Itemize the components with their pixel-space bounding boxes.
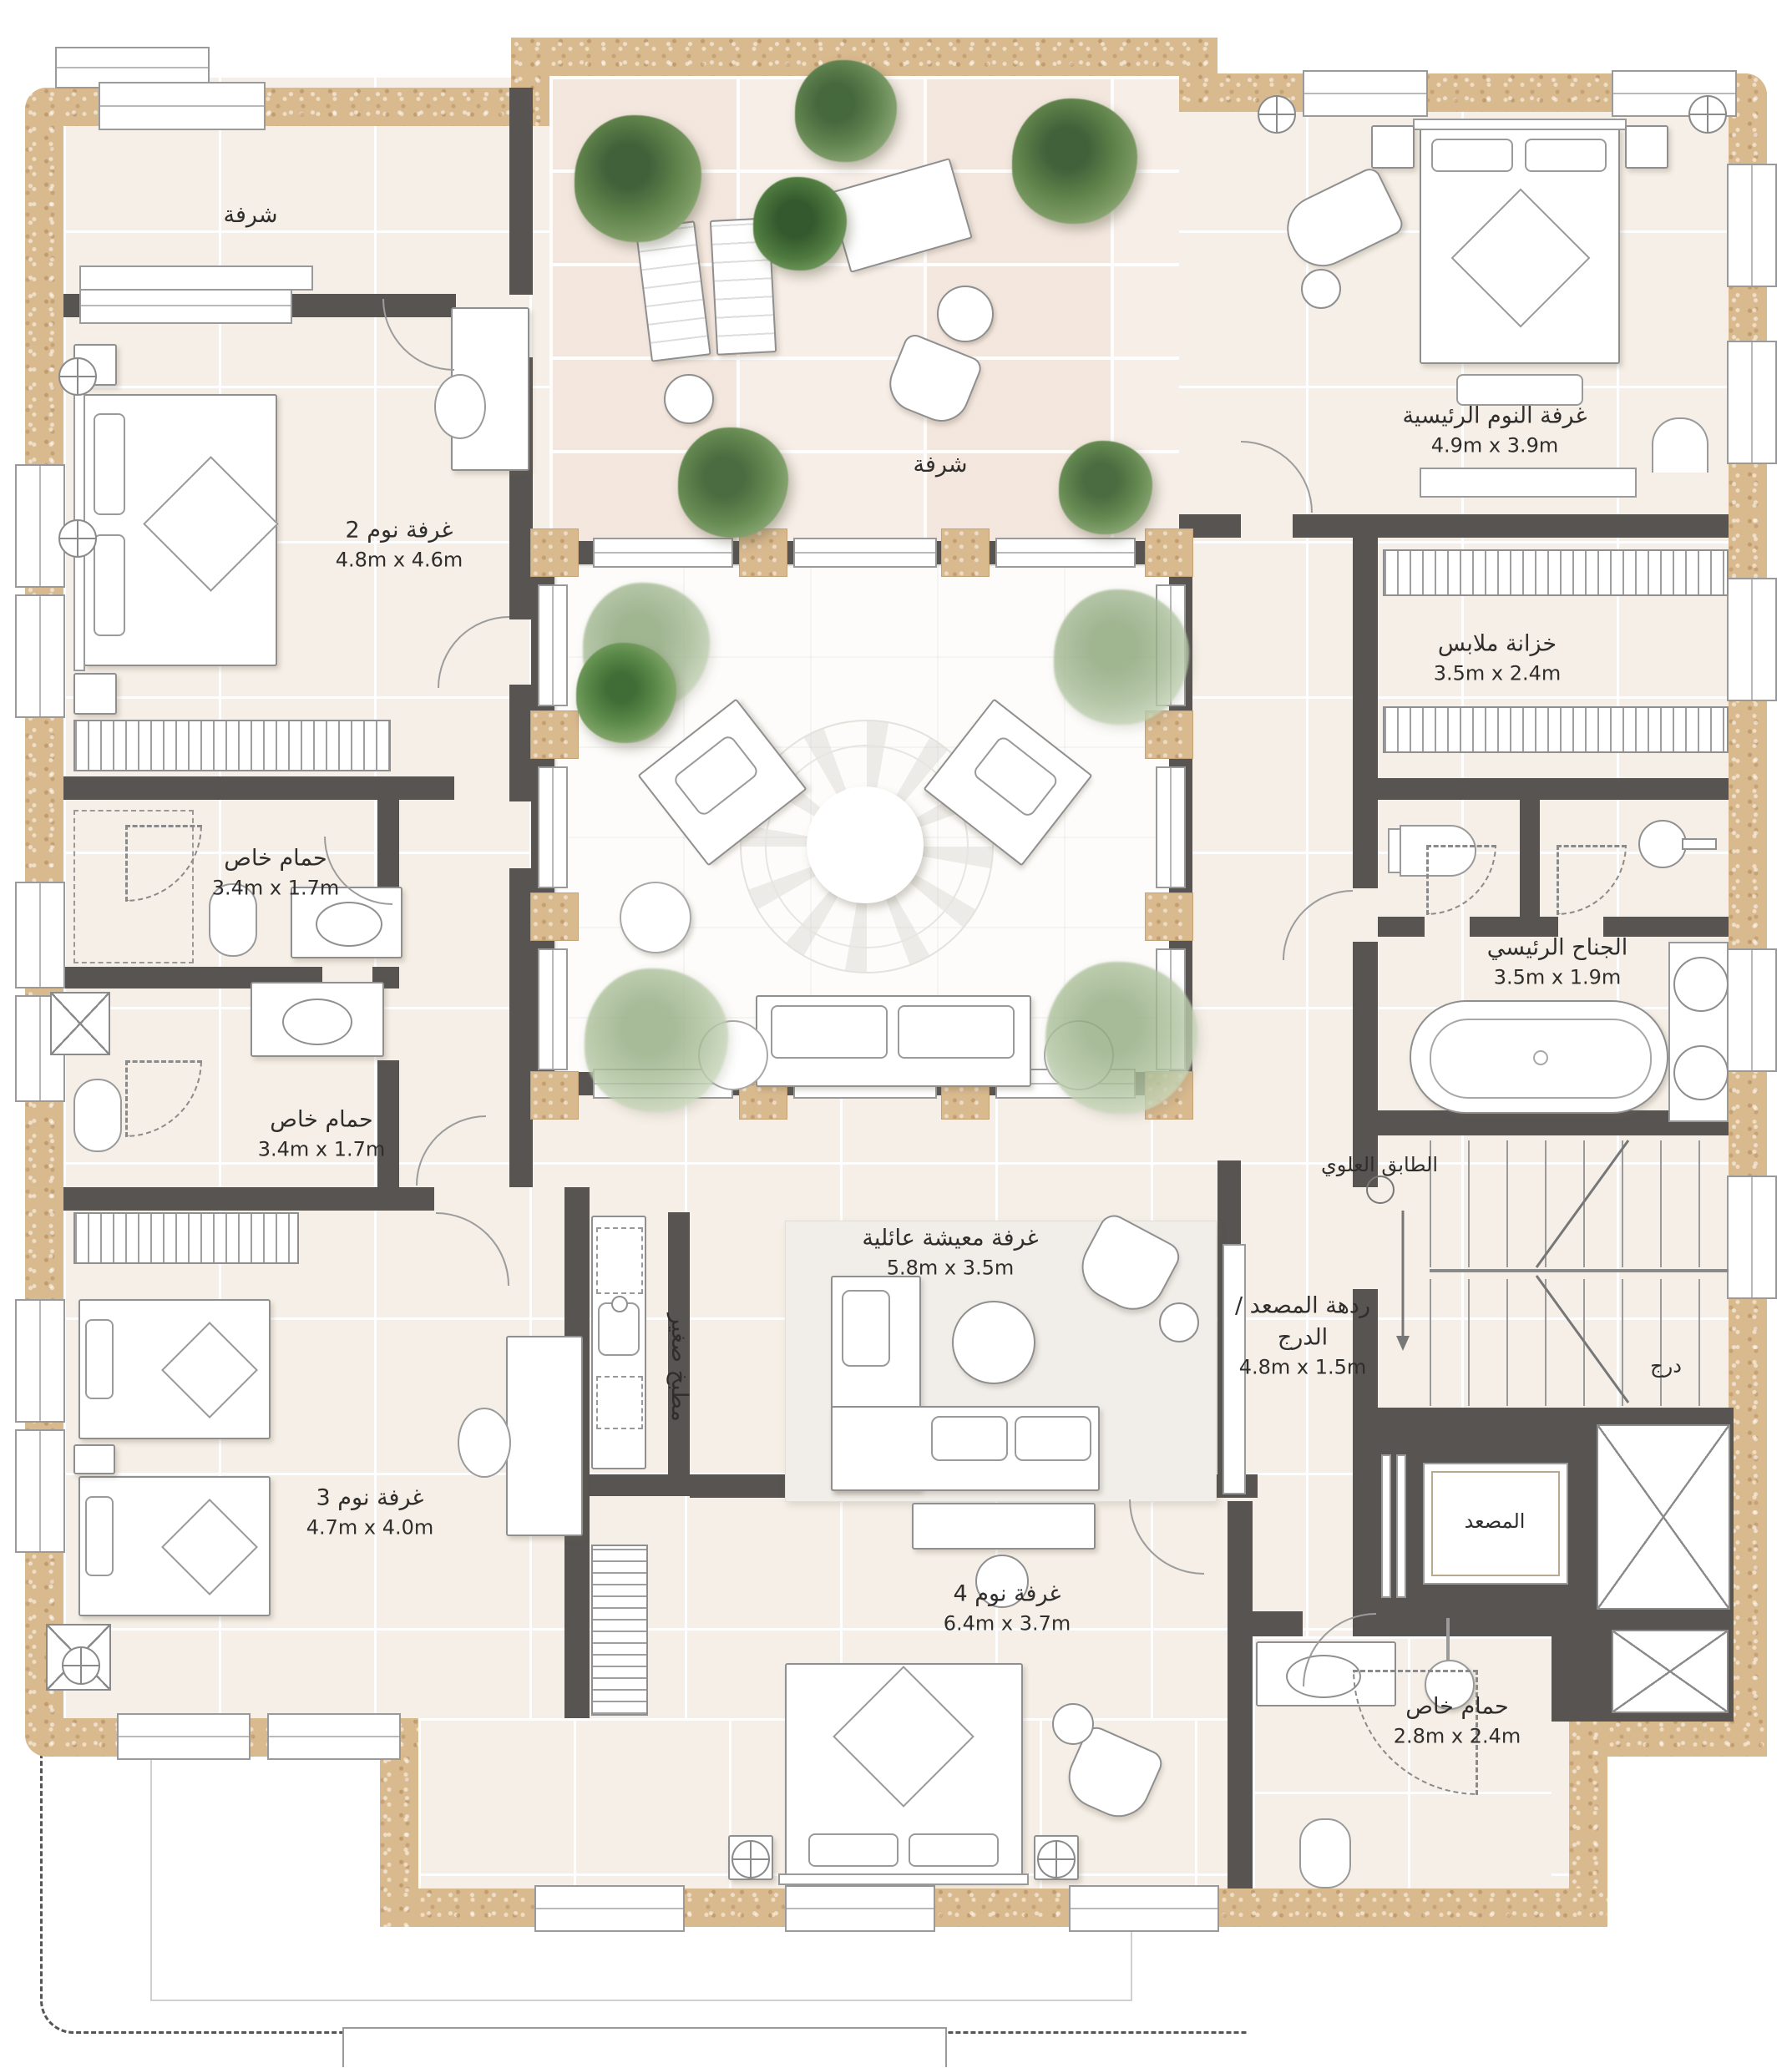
room-dims: 4.8m x 1.5m bbox=[1207, 1353, 1399, 1382]
room-name: حمام خاص bbox=[1394, 1691, 1521, 1722]
toilet bbox=[73, 1079, 122, 1152]
courtyard-table bbox=[807, 786, 924, 903]
room-name: حمام خاص bbox=[212, 842, 340, 874]
ceiling-lamp-icon bbox=[58, 519, 97, 558]
side-table bbox=[1301, 269, 1341, 309]
window bbox=[1303, 70, 1428, 117]
window bbox=[538, 584, 568, 706]
room-name: الجناح الرئيسي bbox=[1487, 932, 1627, 963]
plant bbox=[753, 177, 847, 271]
courtyard-sofa bbox=[756, 995, 1031, 1087]
elevator-shaft bbox=[1597, 1424, 1730, 1610]
shaft-box bbox=[50, 992, 110, 1055]
window bbox=[538, 948, 568, 1070]
room-dims: 4.8m x 4.6m bbox=[336, 546, 463, 574]
floor-tag-label: الطابق العلوي bbox=[1321, 1151, 1438, 1180]
pillar bbox=[1146, 711, 1192, 758]
window bbox=[1156, 766, 1186, 888]
kitchen-appliance-outline bbox=[596, 1227, 643, 1294]
desk bbox=[912, 1503, 1096, 1550]
round-table bbox=[937, 286, 994, 342]
pillar bbox=[942, 529, 989, 576]
wall bbox=[509, 88, 533, 295]
balcony-bench bbox=[79, 265, 313, 291]
wall bbox=[63, 1187, 434, 1211]
pillow bbox=[85, 1496, 114, 1576]
wall bbox=[1353, 942, 1378, 1135]
room-dims: 3.4m x 1.7m bbox=[212, 874, 340, 903]
room-name: غرفة نوم 2 bbox=[336, 514, 463, 546]
wall bbox=[564, 1474, 690, 1496]
wash-basin bbox=[1638, 820, 1687, 868]
cushion bbox=[771, 1005, 888, 1059]
window bbox=[15, 1299, 65, 1423]
chair bbox=[434, 374, 486, 439]
plant bbox=[575, 115, 701, 242]
wall bbox=[1378, 778, 1729, 800]
elevator-door-rail bbox=[1396, 1454, 1406, 1598]
kitchen-appliance-outline bbox=[596, 1376, 643, 1429]
sofa-cushion bbox=[842, 1290, 890, 1367]
wall bbox=[1293, 514, 1729, 538]
room-label-balcony: شرفة bbox=[224, 200, 278, 231]
sink bbox=[282, 999, 352, 1045]
room-dims: 5.8m x 3.5m bbox=[862, 1254, 1038, 1282]
window bbox=[117, 1713, 251, 1760]
wall bbox=[1520, 800, 1540, 918]
wall bbox=[63, 776, 454, 800]
arch-niche bbox=[1652, 417, 1708, 473]
nightstand bbox=[73, 1444, 115, 1474]
side-table bbox=[1159, 1302, 1199, 1342]
side-table bbox=[1052, 1703, 1094, 1745]
dresser bbox=[1420, 468, 1637, 498]
sink bbox=[1673, 957, 1729, 1012]
ceiling-lamp-icon bbox=[58, 357, 97, 396]
window bbox=[99, 82, 266, 130]
bathtub-drain bbox=[1533, 1050, 1548, 1065]
room-name: ردهة المصعد / الدرج bbox=[1207, 1290, 1399, 1353]
pendant-stem bbox=[1446, 1618, 1450, 1661]
pillow bbox=[1525, 139, 1607, 172]
elevator-door-rail bbox=[1381, 1454, 1391, 1598]
wall bbox=[1353, 538, 1378, 888]
room-name: شرفة bbox=[914, 449, 968, 481]
ceiling-lamp-icon bbox=[1037, 1840, 1076, 1878]
plant bbox=[1012, 99, 1137, 224]
stairs-label: درج bbox=[1650, 1353, 1682, 1381]
plant bbox=[1054, 589, 1189, 725]
plant bbox=[795, 60, 897, 162]
room-name: حمام خاص bbox=[258, 1104, 386, 1135]
nightstand bbox=[1625, 125, 1668, 169]
sink bbox=[1673, 1045, 1729, 1100]
pillar bbox=[1146, 893, 1192, 940]
toilet-tank bbox=[1388, 828, 1401, 873]
pillar bbox=[531, 893, 578, 940]
room-label-kitchenette: مطبخ صغير bbox=[663, 1313, 695, 1422]
ceiling-lamp-icon bbox=[1688, 95, 1727, 134]
nightstand bbox=[1371, 125, 1415, 169]
room-name: غرفة نوم 3 bbox=[306, 1482, 434, 1514]
room-name: غرفة نوم 4 bbox=[944, 1578, 1071, 1610]
room-label-family-living: غرفة معيشة عائلية 5.8m x 3.5m bbox=[862, 1222, 1038, 1282]
wall bbox=[1228, 1501, 1253, 1889]
room-name: شرفة bbox=[224, 200, 278, 231]
window bbox=[1727, 164, 1777, 287]
pillow bbox=[808, 1833, 899, 1867]
pillow bbox=[1431, 139, 1513, 172]
wall bbox=[1253, 1611, 1303, 1636]
cushion bbox=[671, 733, 760, 817]
toilet bbox=[1299, 1818, 1351, 1889]
floor-plan: شرفة شرفة غرفة نوم 2 4.8m x 4.6m غرفة ال… bbox=[0, 0, 1792, 2068]
plant bbox=[1059, 441, 1152, 534]
cushion bbox=[898, 1005, 1015, 1059]
room-name: درج bbox=[1650, 1353, 1682, 1381]
room-dims: 6.4m x 3.7m bbox=[944, 1610, 1071, 1638]
room-dims: 3.5m x 1.9m bbox=[1487, 963, 1627, 992]
side-table bbox=[664, 374, 714, 424]
window bbox=[15, 882, 65, 988]
window bbox=[15, 594, 65, 718]
pillow bbox=[85, 1319, 114, 1399]
pillar bbox=[531, 711, 578, 758]
pillow bbox=[909, 1833, 999, 1867]
window bbox=[534, 1885, 685, 1932]
room-label-bath1: حمام خاص 3.4m x 1.7m bbox=[212, 842, 340, 902]
level-marker-icon bbox=[1366, 1176, 1395, 1204]
window bbox=[267, 1713, 401, 1760]
bed-headboard bbox=[778, 1873, 1029, 1885]
window bbox=[1727, 1176, 1777, 1299]
window bbox=[995, 538, 1136, 568]
ceiling-lamp-icon bbox=[731, 1840, 770, 1878]
wardrobe bbox=[1383, 549, 1729, 596]
room-label-bath3: حمام خاص 2.8m x 2.4m bbox=[1394, 1691, 1521, 1750]
wall bbox=[1378, 917, 1425, 937]
room-label-terrace: شرفة bbox=[914, 449, 968, 481]
fern-plant bbox=[576, 643, 676, 743]
room-label-bath2: حمام خاص 3.4m x 1.7m bbox=[258, 1104, 386, 1163]
room-label-bedroom3: غرفة نوم 3 4.7m x 4.0m bbox=[306, 1482, 434, 1541]
laundry-cabinet bbox=[591, 1545, 648, 1716]
room-dims: 2.8m x 2.4m bbox=[1394, 1722, 1521, 1751]
wall bbox=[509, 685, 533, 801]
pillow bbox=[94, 534, 125, 636]
room-dims: 4.9m x 3.9m bbox=[1402, 432, 1587, 460]
room-dims: 4.7m x 4.0m bbox=[306, 1514, 434, 1542]
room-label-lobby: ردهة المصعد / الدرج 4.8m x 1.5m bbox=[1207, 1290, 1399, 1381]
coffee-table bbox=[952, 1301, 1035, 1384]
wardrobe bbox=[73, 1212, 299, 1264]
window bbox=[1727, 341, 1777, 464]
pillow bbox=[94, 413, 125, 515]
window bbox=[15, 464, 65, 588]
room-name: غرفة معيشة عائلية bbox=[862, 1222, 1038, 1254]
window bbox=[1069, 1885, 1219, 1932]
room-name: غرفة النوم الرئيسية bbox=[1402, 400, 1587, 432]
room-name: خزانة ملابس bbox=[1434, 628, 1562, 660]
room-name: مطبخ صغير bbox=[663, 1313, 695, 1422]
shaft-box bbox=[1612, 1630, 1729, 1713]
pillar bbox=[531, 529, 578, 576]
elevator-label: المصعد bbox=[1465, 1508, 1526, 1536]
window bbox=[1727, 948, 1777, 1072]
plant bbox=[678, 427, 788, 538]
lower-entry-slab bbox=[342, 2027, 947, 2067]
plant bbox=[1045, 962, 1197, 1114]
side-table bbox=[620, 882, 691, 953]
pillar bbox=[531, 1072, 578, 1119]
room-label-bedroom4: غرفة نوم 4 6.4m x 3.7m bbox=[944, 1578, 1071, 1637]
nightstand bbox=[73, 673, 117, 715]
wall bbox=[1378, 1611, 1552, 1636]
pillar bbox=[1146, 529, 1192, 576]
bed-headboard bbox=[1413, 119, 1627, 130]
room-label-bedroom2: غرفة نوم 2 4.8m x 4.6m bbox=[336, 514, 463, 574]
window bbox=[793, 538, 937, 568]
sofa-cushion bbox=[1015, 1416, 1091, 1461]
sofa-cushion bbox=[931, 1416, 1008, 1461]
window bbox=[79, 287, 292, 324]
room-dims: 3.5m x 2.4m bbox=[1434, 660, 1562, 688]
chair bbox=[458, 1408, 511, 1478]
room-label-closet: خزانة ملابس 3.5m x 2.4m bbox=[1434, 628, 1562, 687]
desk bbox=[506, 1336, 583, 1536]
wardrobe bbox=[73, 720, 391, 771]
room-name: المصعد bbox=[1465, 1508, 1526, 1536]
pillar bbox=[740, 529, 787, 576]
window bbox=[593, 538, 733, 568]
cushion bbox=[971, 734, 1060, 818]
wall bbox=[509, 868, 533, 1187]
ceiling-lamp-icon bbox=[1258, 95, 1296, 134]
basin-spout bbox=[1682, 838, 1717, 850]
room-label-master-suite: الجناح الرئيسي 3.5m x 1.9m bbox=[1487, 932, 1627, 991]
sink bbox=[316, 902, 382, 947]
window bbox=[785, 1885, 935, 1932]
ceiling-lamp-icon bbox=[62, 1646, 100, 1685]
plant bbox=[585, 968, 728, 1112]
window bbox=[538, 766, 568, 888]
room-label-master-bedroom: غرفة النوم الرئيسية 4.9m x 3.9m bbox=[1402, 400, 1587, 459]
room-dims: 3.4m x 1.7m bbox=[258, 1135, 386, 1164]
outer-wall-right bbox=[1729, 73, 1767, 1757]
wardrobe bbox=[1383, 706, 1729, 753]
window bbox=[15, 1429, 65, 1553]
window bbox=[1727, 578, 1777, 701]
faucet bbox=[611, 1296, 628, 1312]
floor-name: الطابق العلوي bbox=[1321, 1151, 1438, 1180]
